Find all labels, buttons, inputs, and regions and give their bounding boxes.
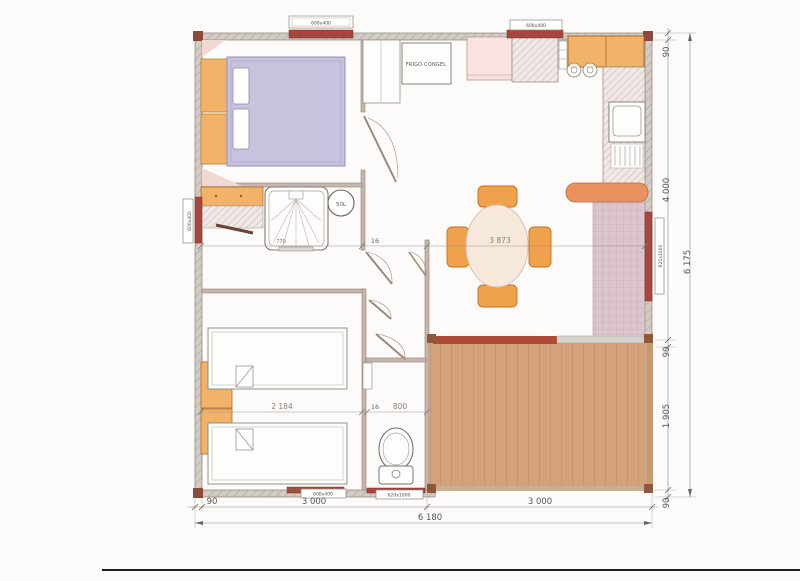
window-size-label: 600x400	[311, 21, 331, 27]
pillow	[233, 68, 249, 104]
deck-planks	[430, 340, 648, 490]
single-bed-2	[208, 423, 347, 484]
wall-bedroom2-top	[202, 289, 364, 293]
seating-area	[566, 183, 648, 335]
wardrobe	[201, 114, 229, 164]
dim-right-90-top: 90	[662, 47, 672, 58]
deck-post	[644, 484, 653, 493]
window-size-label: 600x400	[526, 23, 546, 29]
floor-plan-drawing: FRIGO CONGEL	[0, 0, 800, 581]
chair-top	[478, 186, 517, 207]
deck-rail-right	[648, 340, 653, 490]
dim-living-width: 3 873	[489, 236, 511, 245]
dim-shower-width: 770	[276, 239, 286, 245]
deck-edge-gray	[557, 336, 647, 343]
window-size-label: 620x1000	[658, 245, 664, 268]
corner-post-top-right	[643, 31, 653, 41]
deck-edge-bottom	[430, 486, 652, 491]
dim-right-total: 6 175	[683, 250, 693, 274]
corner-post-top-left	[193, 31, 203, 41]
vanity-counter	[201, 187, 263, 206]
window-top-kitchen	[507, 30, 563, 38]
chair-bottom	[478, 285, 517, 307]
bedroom-1	[201, 40, 345, 186]
dim-right-90-mid: 90	[662, 347, 672, 358]
dim-bottom-3000-right: 3 000	[528, 497, 552, 507]
wall-bedroom1-right-lower	[361, 170, 365, 250]
kitchen: FRIGO CONGEL	[363, 36, 645, 190]
drainer	[611, 144, 643, 168]
shower-head	[289, 191, 303, 199]
wall-fixture-label	[363, 363, 372, 389]
vanity-front	[201, 206, 263, 228]
floor-plan-page: FRIGO CONGEL	[0, 0, 800, 581]
corner-post-bottom-left	[193, 488, 203, 498]
single-bed-1	[208, 328, 347, 389]
bench-seat	[593, 202, 645, 335]
dim-right-90-bottom: 90	[662, 498, 672, 509]
dim-wc-width: 800	[393, 402, 408, 411]
shower-door	[279, 247, 313, 251]
door-leaf-bedroom1	[364, 116, 396, 182]
deck	[427, 334, 653, 493]
dining-area	[447, 186, 551, 307]
window-right-living	[645, 212, 652, 301]
chair-right	[529, 227, 551, 267]
window-left-bathroom	[195, 197, 202, 243]
sofa-backrest	[566, 183, 648, 202]
title-block-line	[102, 569, 800, 571]
window-top-bedroom	[289, 30, 353, 38]
deck-edge-red	[433, 336, 557, 344]
door-arc	[368, 118, 398, 178]
pillow	[233, 109, 249, 149]
dim-wall: 16	[371, 237, 379, 245]
window-size-label: 600x400	[187, 211, 193, 231]
dim-bottom-3000-left: 3 000	[302, 497, 326, 507]
fridge-label: FRIGO CONGEL	[406, 62, 447, 68]
wall-wc-top	[366, 358, 426, 362]
tall-cupboard	[363, 40, 400, 103]
appliance-hatched	[512, 37, 558, 82]
dim-bottom-90: 90	[207, 497, 218, 507]
water-heater-label: 50L	[336, 202, 347, 208]
dim-wall: 16	[371, 403, 379, 411]
corner-shade-top	[202, 40, 226, 57]
wardrobe	[201, 59, 229, 112]
deck-post	[427, 484, 436, 493]
deck-post	[644, 334, 653, 343]
dim-bedroom2-width: 2 184	[271, 402, 293, 411]
dim-right-1905: 1 905	[662, 404, 672, 428]
corner-shade-bottom	[202, 168, 242, 186]
wall-bedroom2-right	[362, 289, 366, 490]
deck-post	[427, 334, 436, 343]
wall-hall-living	[425, 240, 429, 490]
hob-burner	[583, 63, 597, 77]
dim-bottom-total: 6 180	[418, 513, 442, 523]
window-size-label: 620x1000	[388, 493, 411, 499]
toilet-tank	[379, 466, 413, 484]
spice-rack	[559, 41, 567, 69]
wc	[363, 363, 413, 484]
base-cabinet	[467, 37, 512, 80]
dim-right-4000: 4 000	[662, 178, 672, 202]
hob-burner	[567, 63, 581, 77]
toilet-bowl	[379, 428, 413, 470]
